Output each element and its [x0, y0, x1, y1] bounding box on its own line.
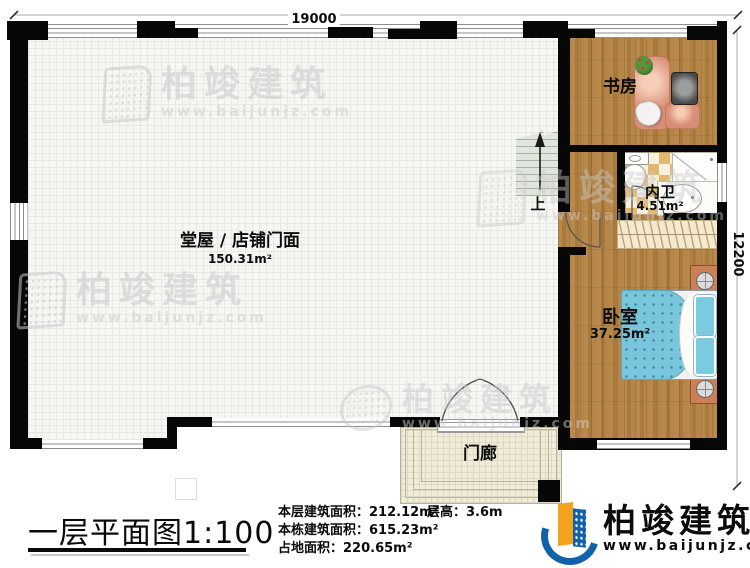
bathroom-area: 4.51m² — [630, 199, 690, 213]
floor-plan: 柏竣建筑 www.baijunjz.com 柏竣建筑 www.baijunjz.… — [0, 0, 750, 568]
area-stats: 本层建筑面积：212.12m² 本栋建筑面积：615.23m² 占地面积：220… — [278, 504, 438, 558]
hall-name: 堂屋 / 店铺门面 — [150, 232, 330, 252]
stat-row: 本层建筑面积：212.12m² — [278, 504, 438, 522]
brand-logo-icon — [541, 500, 595, 558]
floor-height: 层高：3.6m — [427, 504, 503, 522]
plan-title-block: 一层平面图1:100 — [28, 508, 274, 552]
stat-row: 占地面积：220.65m² — [278, 540, 438, 558]
hall-label: 堂屋 / 店铺门面 150.31m² — [150, 232, 330, 266]
entry-door-swing — [442, 379, 480, 421]
dimension-height-label: 12200 — [730, 228, 744, 280]
stairs-up-label: 上 — [524, 196, 552, 213]
brand-name: 柏竣建筑 — [603, 504, 750, 539]
hall-area: 150.31m² — [150, 252, 330, 266]
stairs-up-arrowhead — [535, 132, 545, 147]
stat-label: 占地面积： — [278, 541, 343, 556]
entry-door-swing — [480, 379, 518, 421]
title-underline-shadow — [31, 554, 249, 556]
stat-value: 220.65m² — [343, 541, 412, 556]
brand-website: www.baijunjz.com — [603, 538, 750, 554]
study-name: 书房 — [590, 78, 650, 98]
floor-height-value: 3.6m — [466, 505, 503, 520]
brand-logo: 柏竣建筑 www.baijunjz.com — [541, 500, 750, 558]
bedroom-area: 37.25m² — [588, 327, 652, 342]
brand-building-icon — [558, 502, 573, 546]
stat-value: 615.23m² — [369, 523, 438, 538]
porch-name: 门廊 — [448, 445, 512, 465]
plan-scale: 1:100 — [183, 516, 274, 551]
floor-height-label: 层高： — [427, 505, 466, 520]
stat-row: 本栋建筑面积：615.23m² — [278, 522, 438, 540]
brand-building-icon — [573, 508, 586, 548]
stat-label: 本栋建筑面积： — [278, 523, 369, 538]
stat-label: 本层建筑面积： — [278, 505, 369, 520]
plan-title: 一层平面图 — [28, 516, 183, 551]
corridor-door-swing — [566, 213, 600, 247]
dimension-width-label: 19000 — [288, 13, 340, 27]
bedroom-name: 卧室 — [596, 308, 644, 329]
title-underline — [28, 548, 246, 552]
